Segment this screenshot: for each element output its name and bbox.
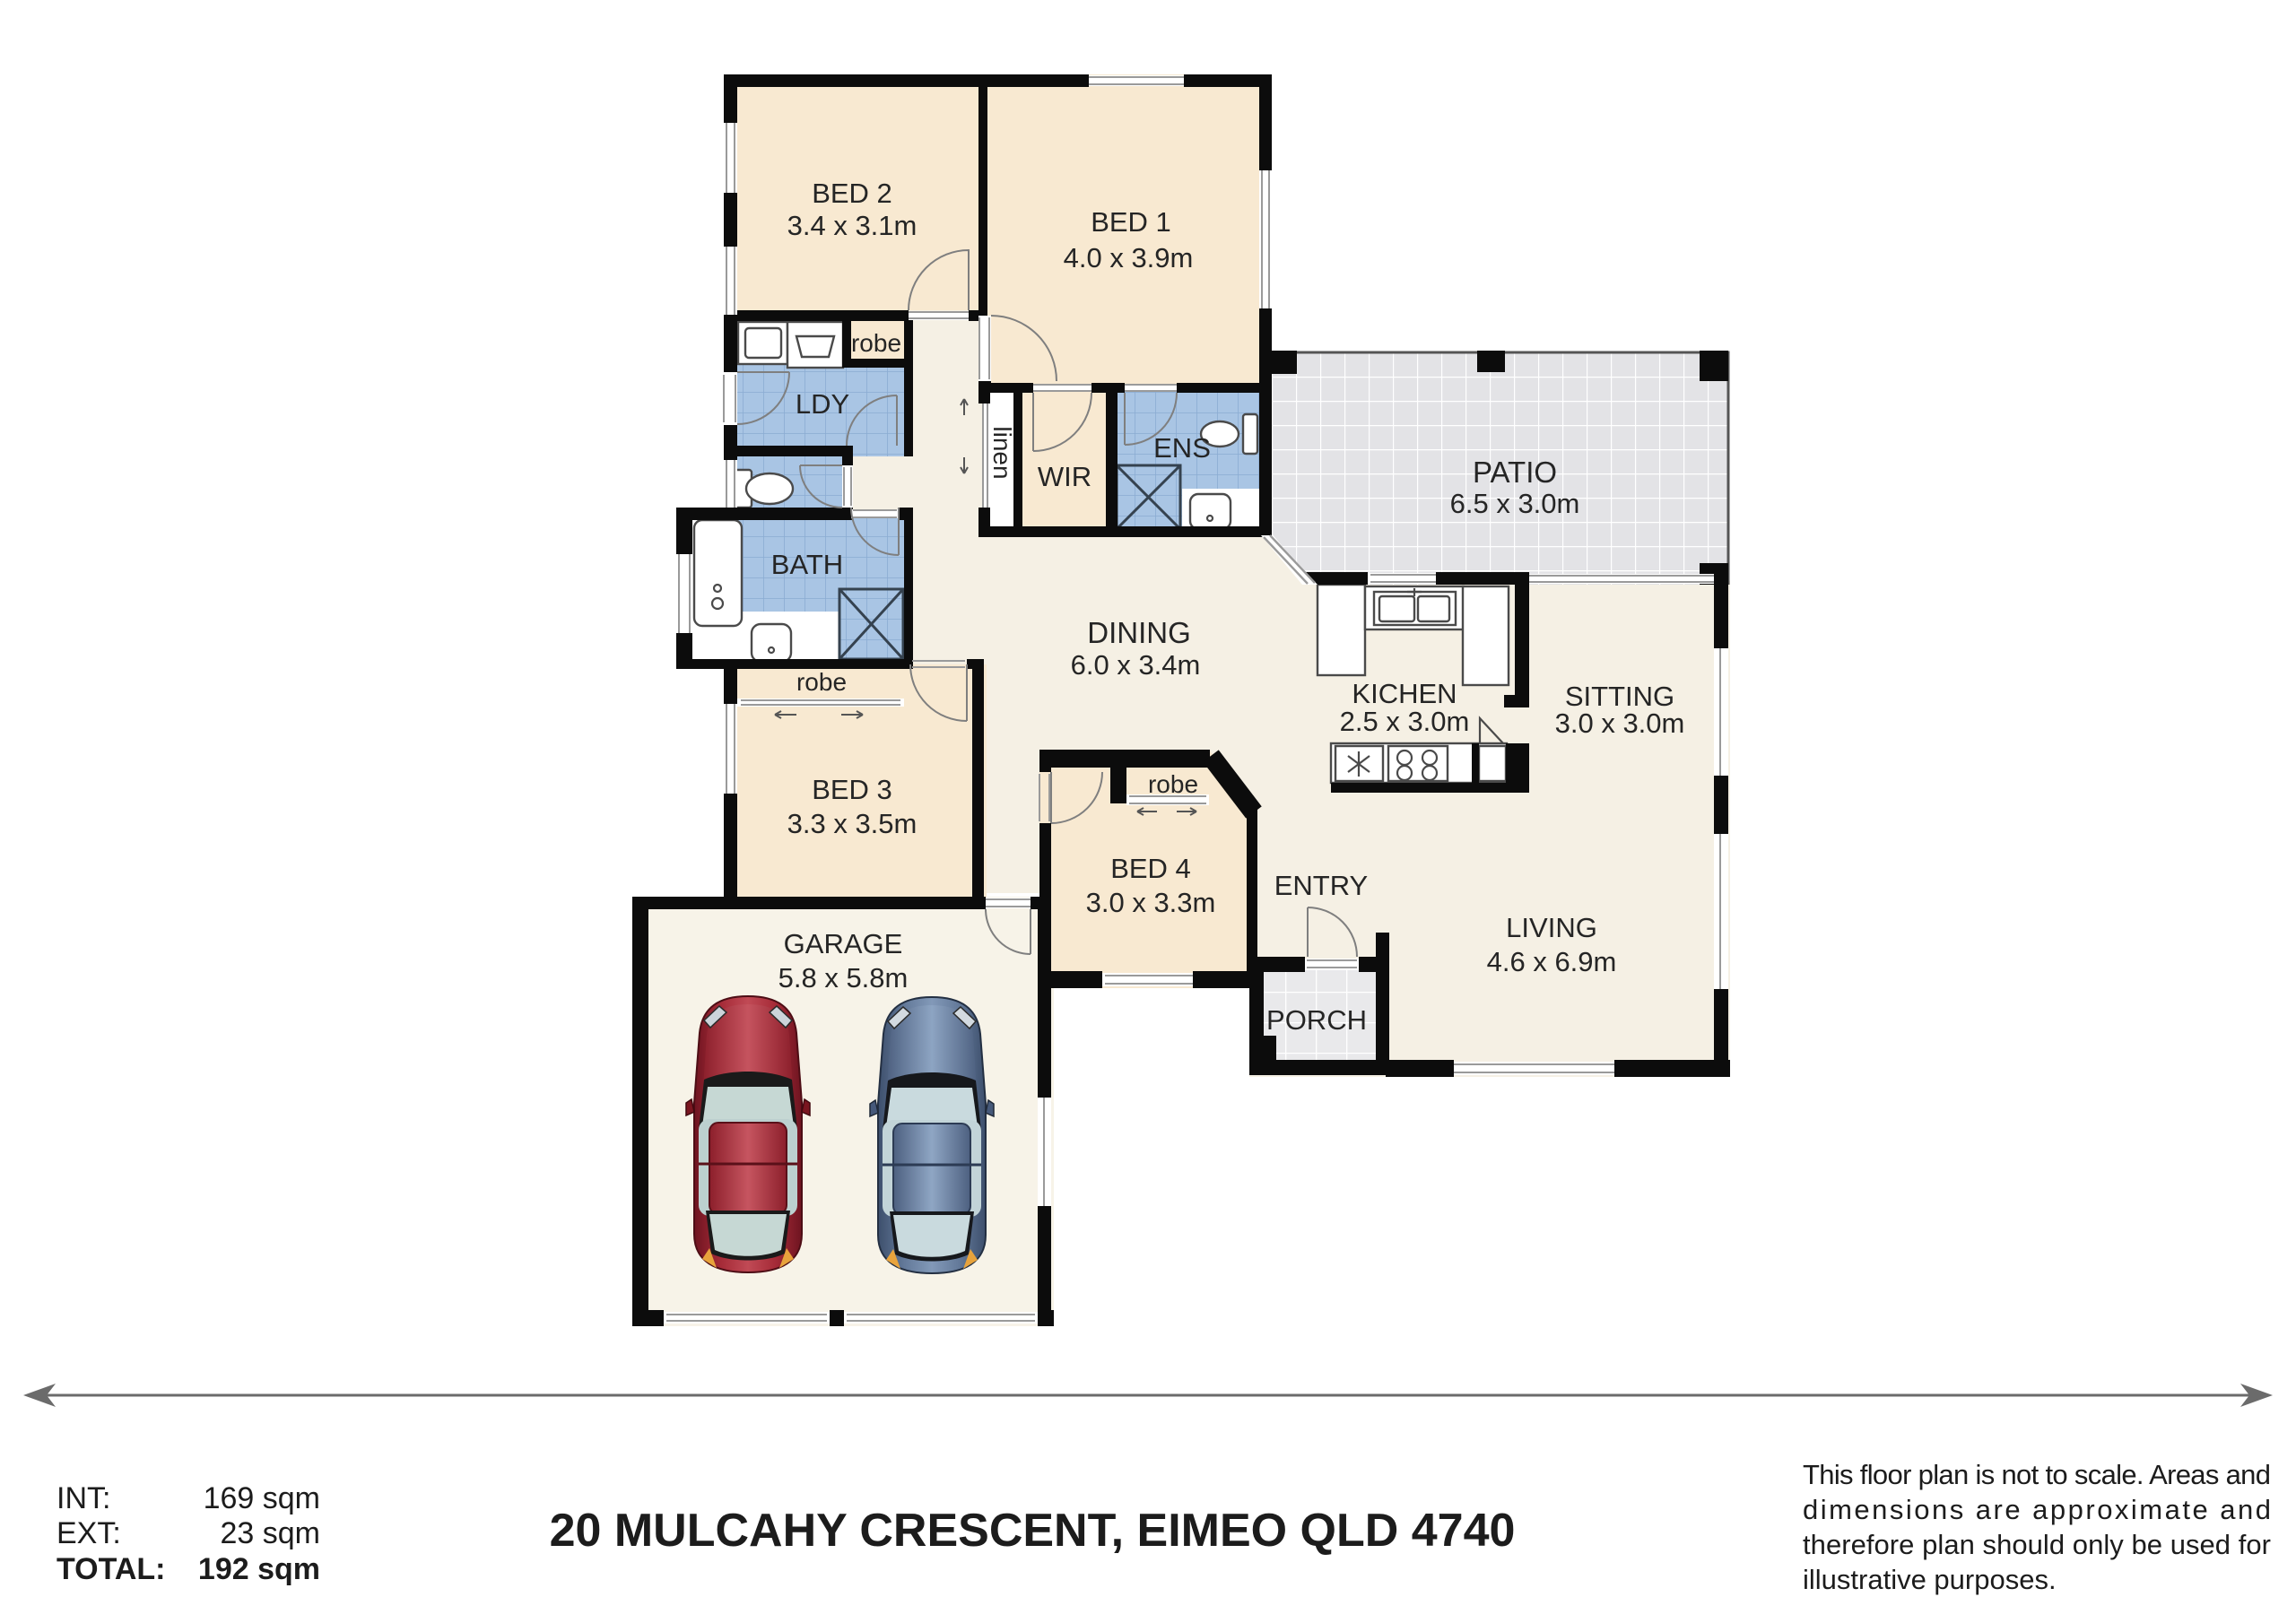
svg-text:20 MULCAHY CRESCENT, EIMEO QLD: 20 MULCAHY CRESCENT, EIMEO QLD 4740	[550, 1505, 1516, 1557]
svg-text:EXT:: EXT:	[57, 1516, 121, 1550]
svg-text:illustrative purposes.: illustrative purposes.	[1803, 1564, 2057, 1595]
svg-text:TOTAL:: TOTAL:	[57, 1552, 166, 1586]
svg-text:robe: robe	[851, 329, 901, 357]
svg-text:ENTRY: ENTRY	[1274, 870, 1369, 901]
svg-text:23 sqm: 23 sqm	[221, 1516, 321, 1550]
svg-text:3.0 x 3.3m: 3.0 x 3.3m	[1086, 887, 1216, 918]
svg-text:BATH: BATH	[771, 549, 843, 580]
svg-text:3.3 x 3.5m: 3.3 x 3.5m	[787, 808, 918, 839]
svg-text:therefore plan should only be: therefore plan should only be used for	[1803, 1529, 2271, 1560]
svg-text:BED 4: BED 4	[1110, 853, 1191, 884]
svg-text:BED 2: BED 2	[812, 178, 892, 209]
svg-text:robe: robe	[1148, 770, 1198, 798]
svg-text:linen: linen	[988, 426, 1016, 479]
svg-text:ENS: ENS	[1153, 432, 1211, 464]
svg-text:robe: robe	[796, 668, 847, 696]
svg-text:169 sqm: 169 sqm	[204, 1481, 320, 1515]
svg-text:2.5 x 3.0m: 2.5 x 3.0m	[1340, 706, 1470, 737]
svg-text:4.6 x 6.9m: 4.6 x 6.9m	[1487, 946, 1617, 977]
svg-text:INT:: INT:	[57, 1481, 110, 1515]
svg-text:6.0 x 3.4m: 6.0 x 3.4m	[1071, 649, 1201, 681]
svg-text:dimensions are approximate and: dimensions are approximate and	[1803, 1494, 2271, 1525]
svg-text:GARAGE: GARAGE	[784, 928, 903, 959]
svg-text:4.0 x 3.9m: 4.0 x 3.9m	[1064, 242, 1194, 273]
svg-text:WIR: WIR	[1038, 461, 1091, 492]
svg-text:LDY: LDY	[796, 388, 849, 420]
svg-text:PORCH: PORCH	[1266, 1004, 1367, 1036]
svg-text:This floor plan is not to scal: This floor plan is not to scale. Areas a…	[1803, 1459, 2271, 1490]
svg-text:LIVING: LIVING	[1506, 912, 1597, 943]
svg-text:192 sqm: 192 sqm	[198, 1552, 320, 1586]
svg-text:BED 3: BED 3	[812, 774, 892, 805]
svg-text:DINING: DINING	[1087, 616, 1191, 649]
svg-text:KICHEN: KICHEN	[1352, 678, 1457, 709]
svg-text:3.0 x 3.0m: 3.0 x 3.0m	[1555, 707, 1685, 739]
svg-text:PATIO: PATIO	[1473, 456, 1557, 489]
svg-text:6.5 x 3.0m: 6.5 x 3.0m	[1450, 488, 1580, 519]
svg-text:5.8 x 5.8m: 5.8 x 5.8m	[778, 962, 909, 994]
svg-text:BED 1: BED 1	[1091, 206, 1171, 238]
svg-text:3.4 x 3.1m: 3.4 x 3.1m	[787, 210, 918, 241]
